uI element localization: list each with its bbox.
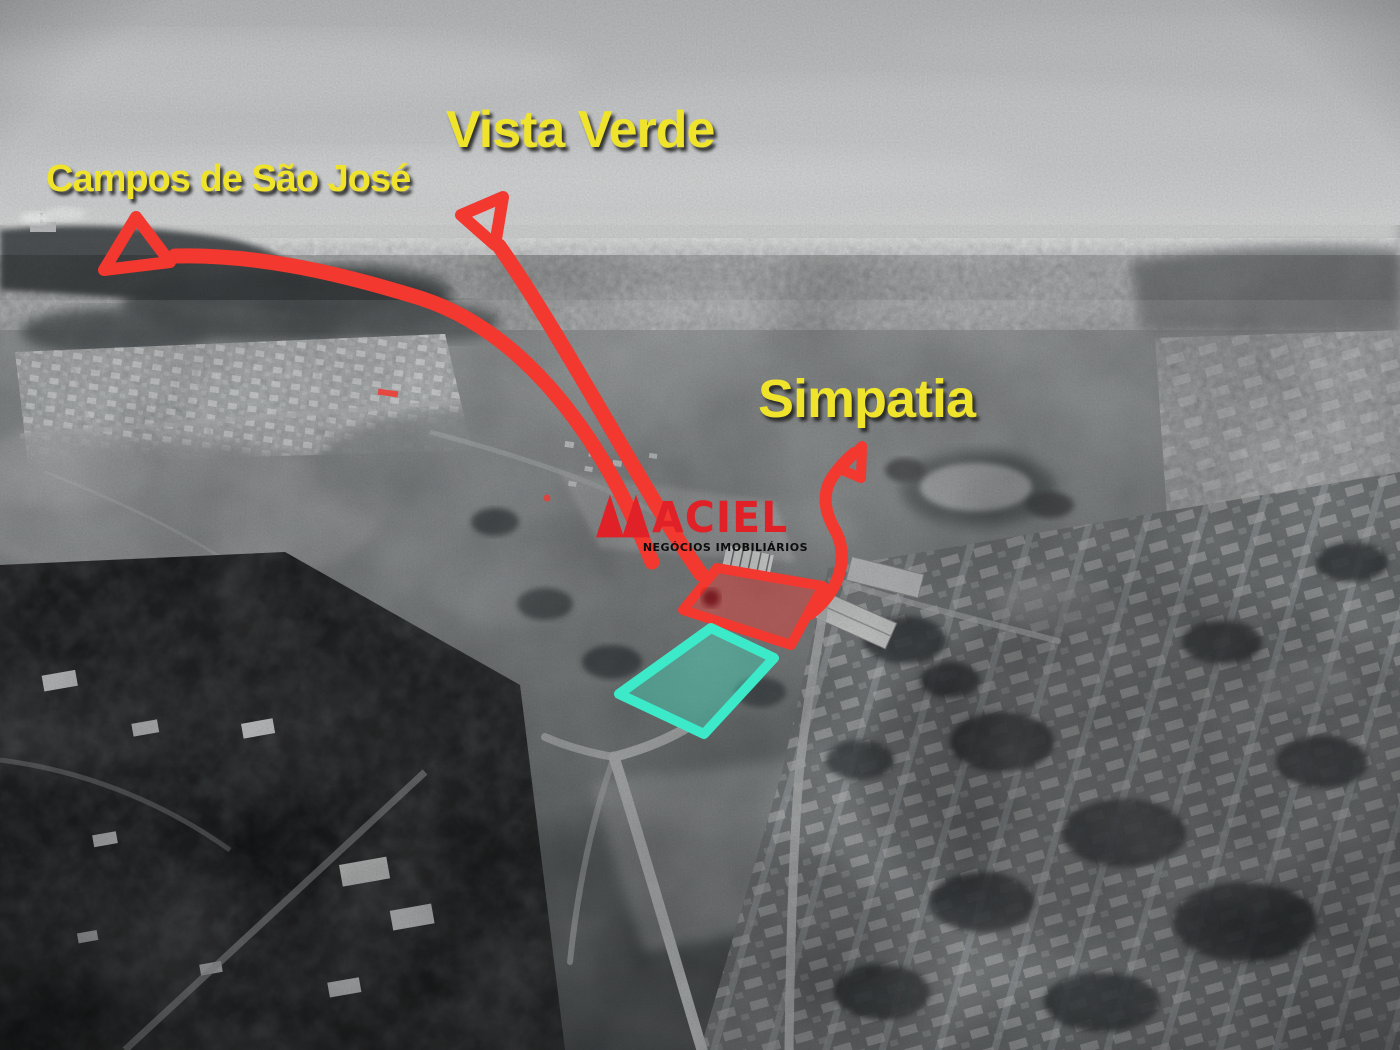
arrow-vista-verde-head — [461, 197, 503, 245]
label-vista-verde: Vista Verde — [446, 104, 714, 156]
small-red-dot-mark — [544, 495, 551, 502]
aerial-photo-scene: Vista Verde Campos de São José Simpatia … — [0, 0, 1400, 1050]
label-campos-de-sao-jose: Campos de São José — [46, 160, 410, 198]
small-red-dash-mark — [378, 389, 399, 398]
arrow-simpatia-head — [840, 446, 862, 478]
arrow-campos-head — [104, 217, 170, 270]
logo-name-row: ACIEL — [596, 494, 808, 538]
maciel-logo: ACIEL NEGÓCIOS IMOBILIÁRIOS — [596, 494, 808, 554]
red-spot-mark — [702, 589, 720, 607]
cyan-plot-highlight — [619, 628, 774, 734]
logo-name-text: ACIEL — [652, 499, 788, 538]
label-simpatia: Simpatia — [758, 372, 975, 426]
plot-highlights — [619, 568, 823, 734]
arrow-campos-line — [175, 256, 652, 562]
logo-m-icon — [596, 494, 650, 538]
logo-tagline: NEGÓCIOS IMOBILIÁRIOS — [596, 541, 808, 554]
